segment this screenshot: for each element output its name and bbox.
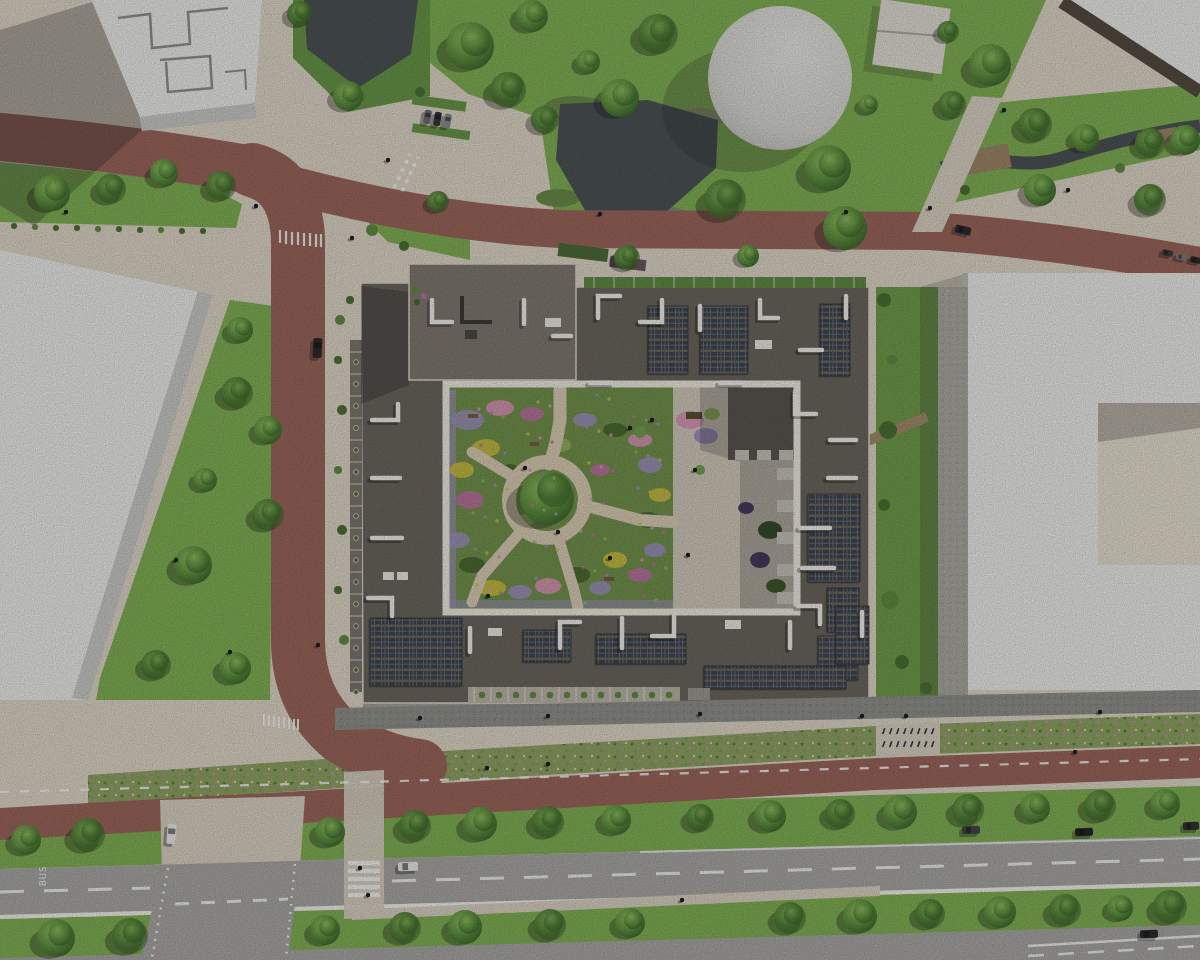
aerial-site-plan: BUS xyxy=(0,0,1200,960)
photo-grain-overlay xyxy=(0,0,1200,960)
aerial-render-canvas: BUS xyxy=(0,0,1200,960)
